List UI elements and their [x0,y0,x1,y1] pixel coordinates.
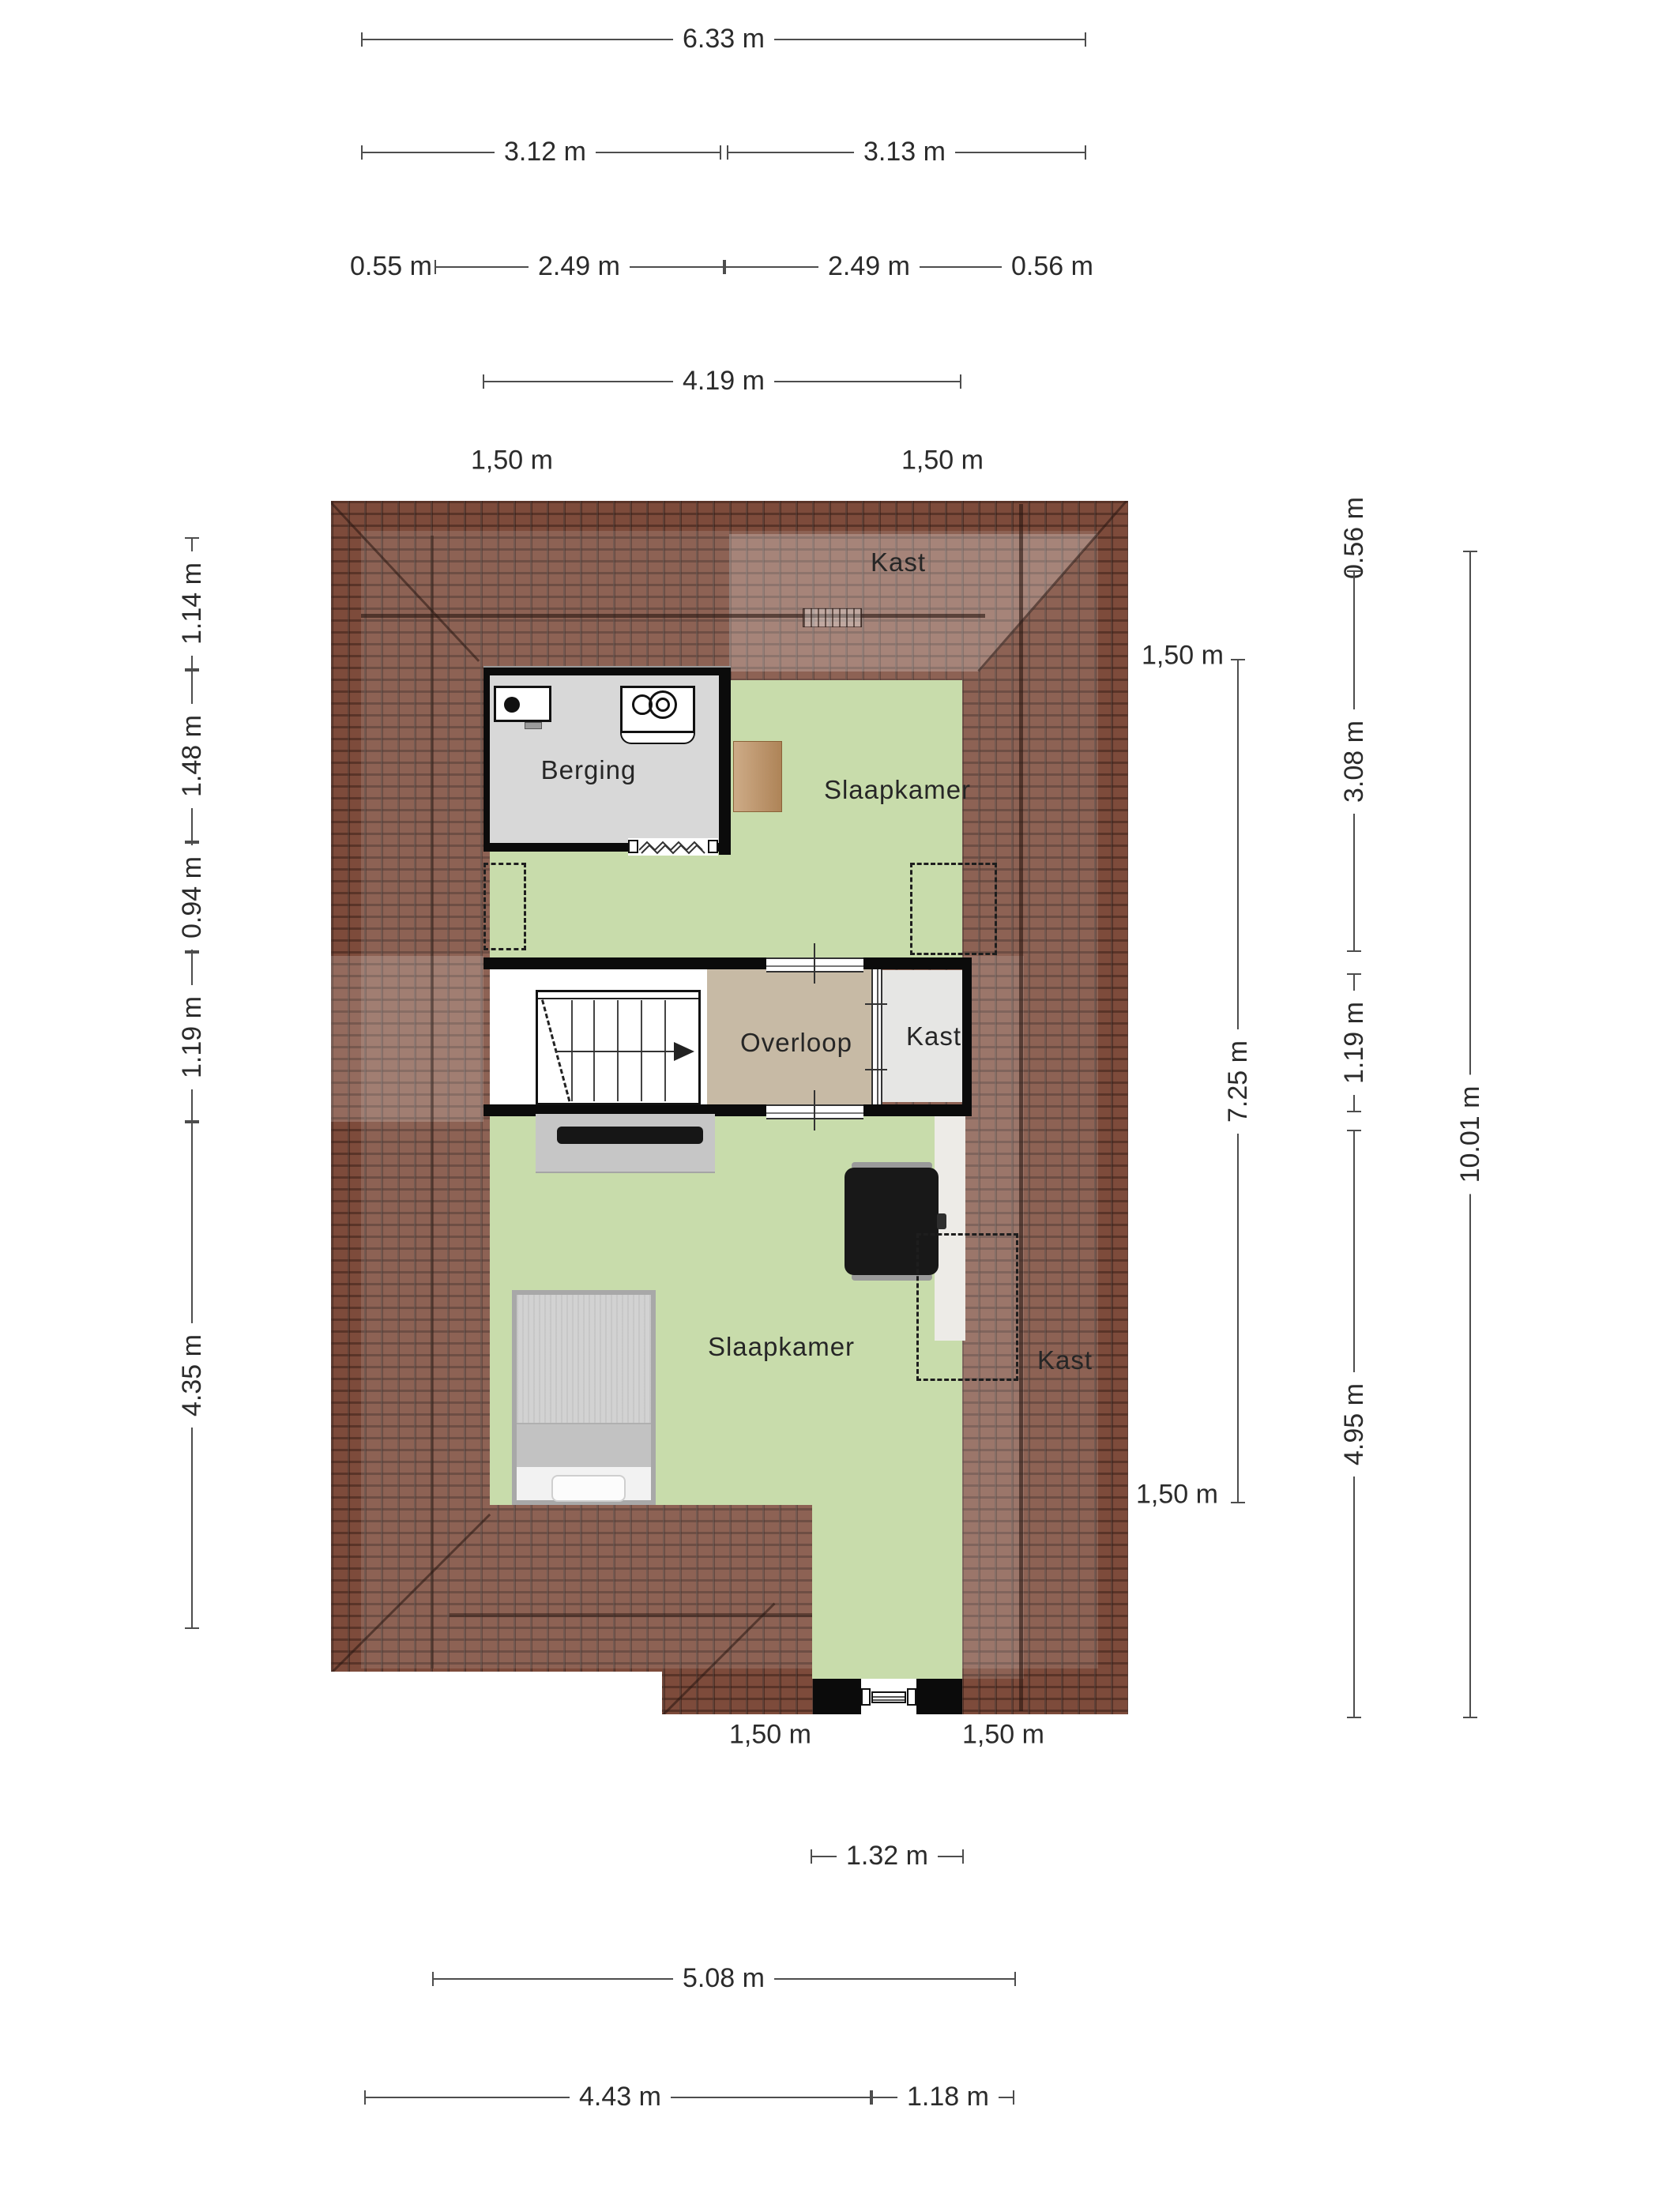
dim-313-label: 3.13 m [854,138,955,165]
dim-419-tick-0 [483,374,484,389]
exterior-wall-bottom-r [916,1679,962,1714]
dim-249a: 2.49 m [434,266,724,268]
dim-633-tick-0 [361,32,363,47]
dim-094-label: 0.94 m [179,845,205,950]
dim-419-label: 4.19 m [673,367,774,394]
doorway-bedroom1-overloop-tick [814,943,815,984]
office-chair-back-knob [937,1213,946,1229]
dim-312-tick-0 [361,145,363,160]
stair-direction-arrow-icon [674,1042,694,1061]
dim-094: 0.94 m [191,842,193,952]
roof-ridge-top [361,614,985,618]
boiler-knob-icon [504,697,520,713]
label-150-right-lower: 1,50 m [1136,1480,1218,1510]
berging-wall-right [719,668,731,855]
dim-435: 4.35 m [191,1122,193,1629]
washing-machine [620,686,695,733]
dim-508-label: 5.08 m [673,1965,774,1992]
dim-118: 1.18 m [871,2097,1014,2098]
dim-114-tick-0 [185,537,199,539]
dim-132-label: 1.32 m [837,1842,938,1869]
bed-fold-band [517,1423,651,1470]
dim-435-tick-1 [185,1627,199,1629]
dim-118-tick-1 [1013,2090,1014,2105]
sliding-door-kast [871,969,882,1104]
dim-495: 4.95 m [1353,1130,1355,1718]
label-kast-right: Kast [1037,1345,1093,1375]
doorway-bedroom2-overloop-tick [814,1090,815,1130]
dim-312-tick-1 [720,145,721,160]
berging-wall-top [483,668,731,675]
label-150-bottom-left: 1,50 m [729,1720,811,1751]
dim-119-right: 1.19 m [1353,973,1355,1112]
dim-148: 1.48 m [191,670,193,842]
dim-1001-label: 10.01 m [1457,1075,1484,1194]
berging-wall-bottom-l [483,843,628,852]
dim-119-right-tick-0 [1347,973,1361,975]
kast-mid-wall-right [962,957,972,1116]
dim-633: 6.33 m [361,39,1086,40]
dim-419-tick-1 [960,374,961,389]
door-jamb [708,840,718,853]
label-kast-mid: Kast [906,1021,961,1051]
stair-direction-line [555,1051,679,1052]
dim-495-label: 4.95 m [1341,1372,1367,1477]
dim-132-tick-1 [962,1849,964,1864]
dim-308-tick-0 [1347,570,1361,572]
bed [512,1290,656,1505]
dim-508-tick-0 [432,1972,434,1986]
dim-055: 0.55 m [361,266,434,268]
dim-148-label: 1.48 m [179,704,205,808]
dim-508-tick-1 [1014,1972,1016,1986]
roof-window-hatch [803,608,862,627]
dim-725: 7.25 m [1237,659,1239,1503]
dim-308-tick-1 [1347,950,1361,952]
dim-118-tick-0 [871,2090,873,2105]
boiler [494,686,551,722]
dim-725-label: 7.25 m [1224,1029,1251,1134]
dim-056-top: 0.56 m [1014,266,1086,268]
berging-wall-left [483,675,490,852]
dim-443-tick-0 [364,2090,366,2105]
dim-249a-label: 2.49 m [529,253,630,280]
dim-249b-tick-0 [724,260,726,274]
washing-machine-base [620,733,695,744]
washer-drum-inner-icon [656,698,670,712]
wood-cabinet [733,741,782,812]
floorplan-canvas: 6.33 m3.12 m3.13 m0.55 m2.49 m2.49 m0.56… [0,0,1659,2212]
dim-633-tick-1 [1085,32,1086,47]
dim-056-right: 0.56 m [1353,506,1355,570]
landing-wall-top-l [483,957,766,969]
dim-419: 4.19 m [483,381,961,382]
sliding-door-tick-2 [865,1069,887,1070]
door-leaf [871,1691,906,1703]
label-overloop: Overloop [740,1028,852,1058]
label-berging: Berging [541,755,637,785]
dashed-zone-bedroom1-left [483,863,526,950]
zigzag-door-icon [639,839,707,855]
dim-1001: 10.01 m [1469,551,1471,1718]
dim-1001-tick-0 [1463,551,1477,552]
label-150-bottom-right: 1,50 m [962,1720,1044,1751]
dim-119-left-label: 1.19 m [179,985,205,1089]
dim-119-left-tick-0 [185,952,199,954]
laptop [557,1127,703,1144]
staircase-top-rail [538,998,698,999]
roof-left-strip-light [331,956,483,1122]
roof-ridge-right [1019,504,1023,1711]
dim-094-tick-0 [185,842,199,844]
dim-249a-tick-0 [434,260,436,274]
landing-wall-top-r [863,957,964,969]
dim-633-label: 6.33 m [673,25,774,52]
bedroom1-floor-b [490,852,737,957]
label-slaapkamer-2: Slaapkamer [708,1332,855,1362]
berging-folding-door [628,838,718,856]
exterior-wall-bottom-l [813,1679,861,1714]
door-jamb [861,1688,871,1706]
roof-ridge-left [431,536,434,1668]
sliding-door-mid-line [877,969,878,1104]
dim-056-top-label: 0.56 m [1002,253,1103,280]
dim-132-tick-0 [811,1849,812,1864]
dim-435-label: 4.35 m [179,1323,205,1428]
dim-055-label: 0.55 m [340,253,442,280]
dim-249b: 2.49 m [724,266,1014,268]
dashed-zone-bedroom2 [916,1233,1018,1381]
dim-725-tick-0 [1231,659,1245,660]
bedroom2-floor-strip [812,1493,962,1679]
label-slaapkamer-1: Slaapkamer [824,775,971,805]
door-jamb [628,840,638,853]
dim-114-label: 1.14 m [179,551,205,656]
dim-443-label: 4.43 m [570,2083,671,2110]
landing-wall-bottom-r [863,1104,964,1116]
label-150-top-right: 1,50 m [901,446,984,476]
dim-132: 1.32 m [811,1856,964,1857]
dim-495-tick-1 [1347,1717,1361,1718]
dim-435-tick-0 [185,1122,199,1123]
sliding-door-tick-1 [865,1003,887,1005]
dim-443: 4.43 m [364,2097,871,2098]
door-jamb [907,1688,916,1706]
label-150-right-upper: 1,50 m [1142,641,1224,671]
dim-312: 3.12 m [361,152,721,153]
dim-1001-tick-1 [1463,1717,1477,1718]
staircase [536,990,701,1105]
dim-725-tick-1 [1231,1502,1245,1503]
dim-119-right-label: 1.19 m [1341,991,1367,1095]
label-150-top-left: 1,50 m [471,446,553,476]
dim-148-tick-0 [185,670,199,671]
dim-308-label: 3.08 m [1341,709,1367,814]
dim-118-label: 1.18 m [897,2083,999,2110]
label-kast-top: Kast [871,547,926,577]
dim-312-label: 3.12 m [495,138,596,165]
bed-pillow [551,1475,626,1502]
dashed-zone-bedroom1-right [910,863,997,955]
dim-313: 3.13 m [727,152,1086,153]
dim-249b-label: 2.49 m [818,253,920,280]
dim-308: 3.08 m [1353,570,1355,952]
boiler-tab [525,722,542,729]
dim-495-tick-0 [1347,1130,1361,1131]
dim-119-right-tick-1 [1347,1111,1361,1112]
dim-313-tick-1 [1085,145,1086,160]
dim-119-left: 1.19 m [191,952,193,1122]
dim-508: 5.08 m [432,1978,1016,1980]
exterior-door [861,1679,916,1714]
dim-114: 1.14 m [191,537,193,670]
dim-313-tick-0 [727,145,728,160]
